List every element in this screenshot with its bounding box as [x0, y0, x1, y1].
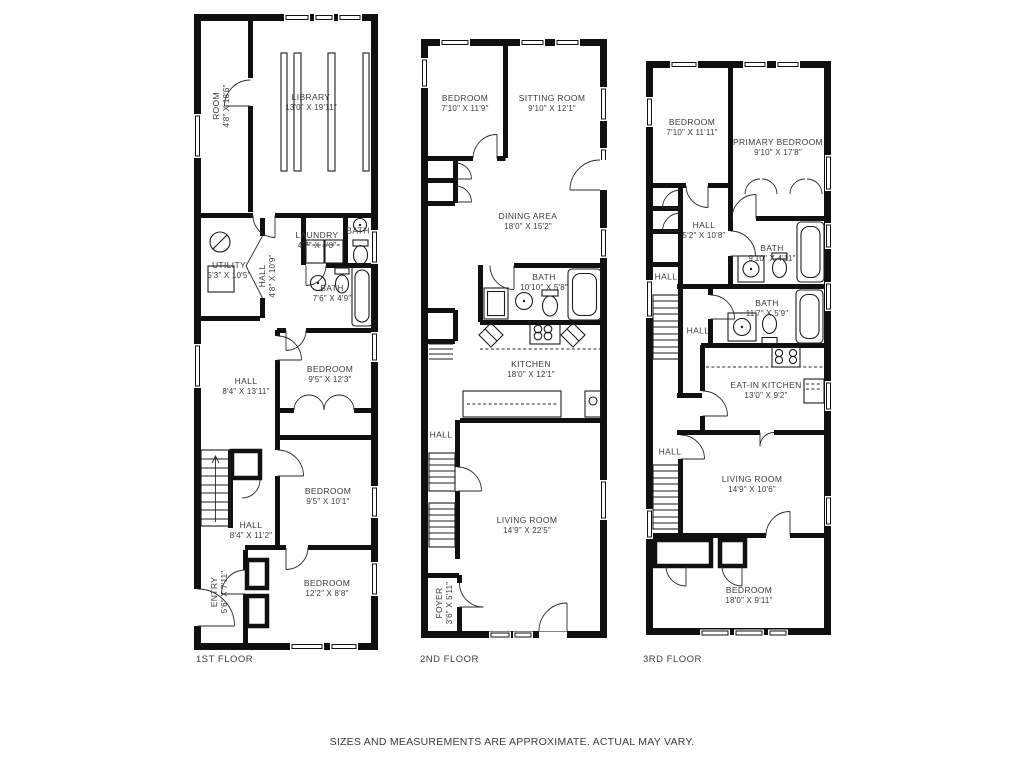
room-name: HALL	[655, 271, 678, 282]
room-label-laundry: LAUNDRY 4'7" X 4'8"	[296, 230, 339, 252]
room-name: LIVING ROOM	[497, 515, 558, 526]
room-dims: 9'5" X 10'1"	[305, 497, 351, 508]
room-dims: 9'10" X 4'11"	[748, 254, 795, 265]
room-name: BATH	[346, 225, 369, 236]
room-name: SITTING ROOM	[519, 93, 586, 104]
floorplan-2nd-floor	[421, 39, 607, 639]
room-name: HALL	[687, 325, 710, 336]
room-label-dining-area: DINING AREA 18'0" X 15'2"	[499, 211, 558, 233]
room-name: HALL	[257, 254, 268, 297]
room-dims: 5'2" X 10'8"	[682, 231, 725, 242]
room-label-hall-left: HALL	[655, 271, 678, 282]
room-dims: 4'7" X 4'8"	[296, 241, 339, 252]
room-name: FOYER	[434, 582, 445, 625]
room-dims: 7'10" X 11'9"	[441, 104, 488, 115]
room-label-hall: HALL	[430, 429, 453, 440]
room-dims: 10'10" X 5'8"	[520, 283, 568, 294]
room-dims: 8'4" X 13'11"	[222, 387, 269, 398]
room-label-foyer: FOYER 3'6" X 5'11"	[434, 582, 456, 625]
room-label-library: LIBRARY 13'0" X 19'11"	[285, 92, 337, 114]
room-label-sitting-room: SITTING ROOM 9'10" X 12'1"	[519, 93, 586, 115]
floorplan-canvas: ROOM 4'8" X 18'6" LIBRARY 13'0" X 19'11"…	[0, 0, 1024, 768]
room-name: ENTRY	[209, 571, 220, 614]
room-label-bath: BATH 10'10" X 5'8"	[520, 272, 568, 294]
room-dims: 11'7" X 5'9"	[746, 309, 789, 320]
room-dims: 9'5" X 12'3"	[307, 375, 353, 386]
room-label-bath: BATH 7'6" X 4'9"	[313, 283, 352, 305]
room-label-bath-2: BATH 11'7" X 5'9"	[746, 298, 789, 320]
floor-label-3rd: 3RD FLOOR	[643, 654, 702, 665]
room-dims: 7'6" X 4'9"	[313, 294, 352, 305]
room-dims: 8'4" X 11'2"	[230, 531, 273, 542]
room-label-hall-lower: HALL	[659, 446, 682, 457]
room-dims: 5'3" X 10'5"	[207, 271, 250, 282]
room-label-entry: ENTRY 5'6" X 7'11"	[209, 571, 231, 614]
room-name: HALL	[659, 446, 682, 457]
room-dims: 9'10" X 17'8"	[733, 148, 823, 159]
room-label-eat-in-kitchen: EAT-IN KITCHEN 13'0" X 9'2"	[730, 380, 801, 402]
room-name: DINING AREA	[499, 211, 558, 222]
room-label-hall: HALL 8'4" X 13'11"	[222, 376, 269, 398]
room-label-bath-1: BATH 9'10" X 4'11"	[748, 243, 795, 265]
room-name: KITCHEN	[507, 359, 555, 370]
room-label-living-room: LIVING ROOM 14'9" X 10'6"	[722, 474, 783, 496]
room-name: HALL	[230, 520, 273, 531]
room-dims: 13'0" X 19'11"	[285, 103, 337, 114]
room-dims: 18'0" X 12'1"	[507, 370, 555, 381]
room-label-bedroom: BEDROOM 7'10" X 11'9"	[441, 93, 488, 115]
room-name: LIBRARY	[285, 92, 337, 103]
room-label-hall-mid: HALL	[687, 325, 710, 336]
room-name: BATH	[746, 298, 789, 309]
floor-label-2nd: 2ND FLOOR	[420, 654, 479, 665]
room-dims: 14'9" X 22'5"	[497, 526, 558, 537]
room-label-kitchen: KITCHEN 18'0" X 12'1"	[507, 359, 555, 381]
room-label-bedroom-1: BEDROOM 9'5" X 12'3"	[307, 364, 353, 386]
room-name: BEDROOM	[305, 486, 351, 497]
room-name: LIVING ROOM	[722, 474, 783, 485]
room-name: ROOM	[211, 84, 222, 127]
room-label-bath-small: BATH	[346, 225, 369, 236]
room-name: BEDROOM	[304, 578, 350, 589]
room-dims: 18'0" X 9'11"	[725, 596, 772, 607]
room-dims: 9'10" X 12'1"	[519, 104, 586, 115]
floorplan-drawing-2nd	[421, 39, 607, 639]
room-name: HALL	[682, 220, 725, 231]
room-dims: 18'0" X 15'2"	[499, 222, 558, 233]
room-dims: 12'2" X 8'8"	[304, 589, 350, 600]
room-label-living-room: LIVING ROOM 14'9" X 22'5"	[497, 515, 558, 537]
room-label-bedroom-3: BEDROOM 12'2" X 8'8"	[304, 578, 350, 600]
room-label-bedroom-lower: BEDROOM 18'0" X 9'11"	[725, 585, 772, 607]
room-dims: 4'8" X 18'6"	[222, 84, 233, 127]
room-name: LAUNDRY	[296, 230, 339, 241]
room-name: BATH	[520, 272, 568, 283]
room-label-primary-bedroom: PRIMARY BEDROOM 9'10" X 17'8"	[733, 137, 823, 159]
room-name: HALL	[222, 376, 269, 387]
room-label-hall-lower: HALL 8'4" X 11'2"	[230, 520, 273, 542]
room-name: BEDROOM	[666, 117, 717, 128]
room-label-utility: UTILITY 5'3" X 10'5"	[207, 260, 250, 282]
room-dims: 3'6" X 5'11"	[445, 582, 456, 625]
room-dims: 13'0" X 9'2"	[730, 391, 801, 402]
room-name: UTILITY	[207, 260, 250, 271]
room-name: BEDROOM	[307, 364, 353, 375]
room-label-bedroom-2: BEDROOM 9'5" X 10'1"	[305, 486, 351, 508]
room-name: BATH	[313, 283, 352, 294]
room-name: BATH	[748, 243, 795, 254]
room-label-hall-vert: HALL 4'8" X 10'9"	[257, 254, 279, 297]
room-name: PRIMARY BEDROOM	[733, 137, 823, 148]
room-label-room: ROOM 4'8" X 18'6"	[211, 84, 233, 127]
room-dims: 14'9" X 10'6"	[722, 485, 783, 496]
room-name: EAT-IN KITCHEN	[730, 380, 801, 391]
room-dims: 4'8" X 10'9"	[268, 254, 279, 297]
room-name: BEDROOM	[725, 585, 772, 596]
room-dims: 7'10" X 11'11"	[666, 128, 717, 139]
room-label-hall-upper: HALL 5'2" X 10'8"	[682, 220, 725, 242]
floor-label-1st: 1ST FLOOR	[196, 654, 253, 665]
room-dims: 5'6" X 7'11"	[220, 571, 231, 614]
room-name: HALL	[430, 429, 453, 440]
disclaimer-text: SIZES AND MEASUREMENTS ARE APPROXIMATE. …	[330, 736, 695, 748]
room-label-bedroom: BEDROOM 7'10" X 11'11"	[666, 117, 717, 139]
room-name: BEDROOM	[441, 93, 488, 104]
